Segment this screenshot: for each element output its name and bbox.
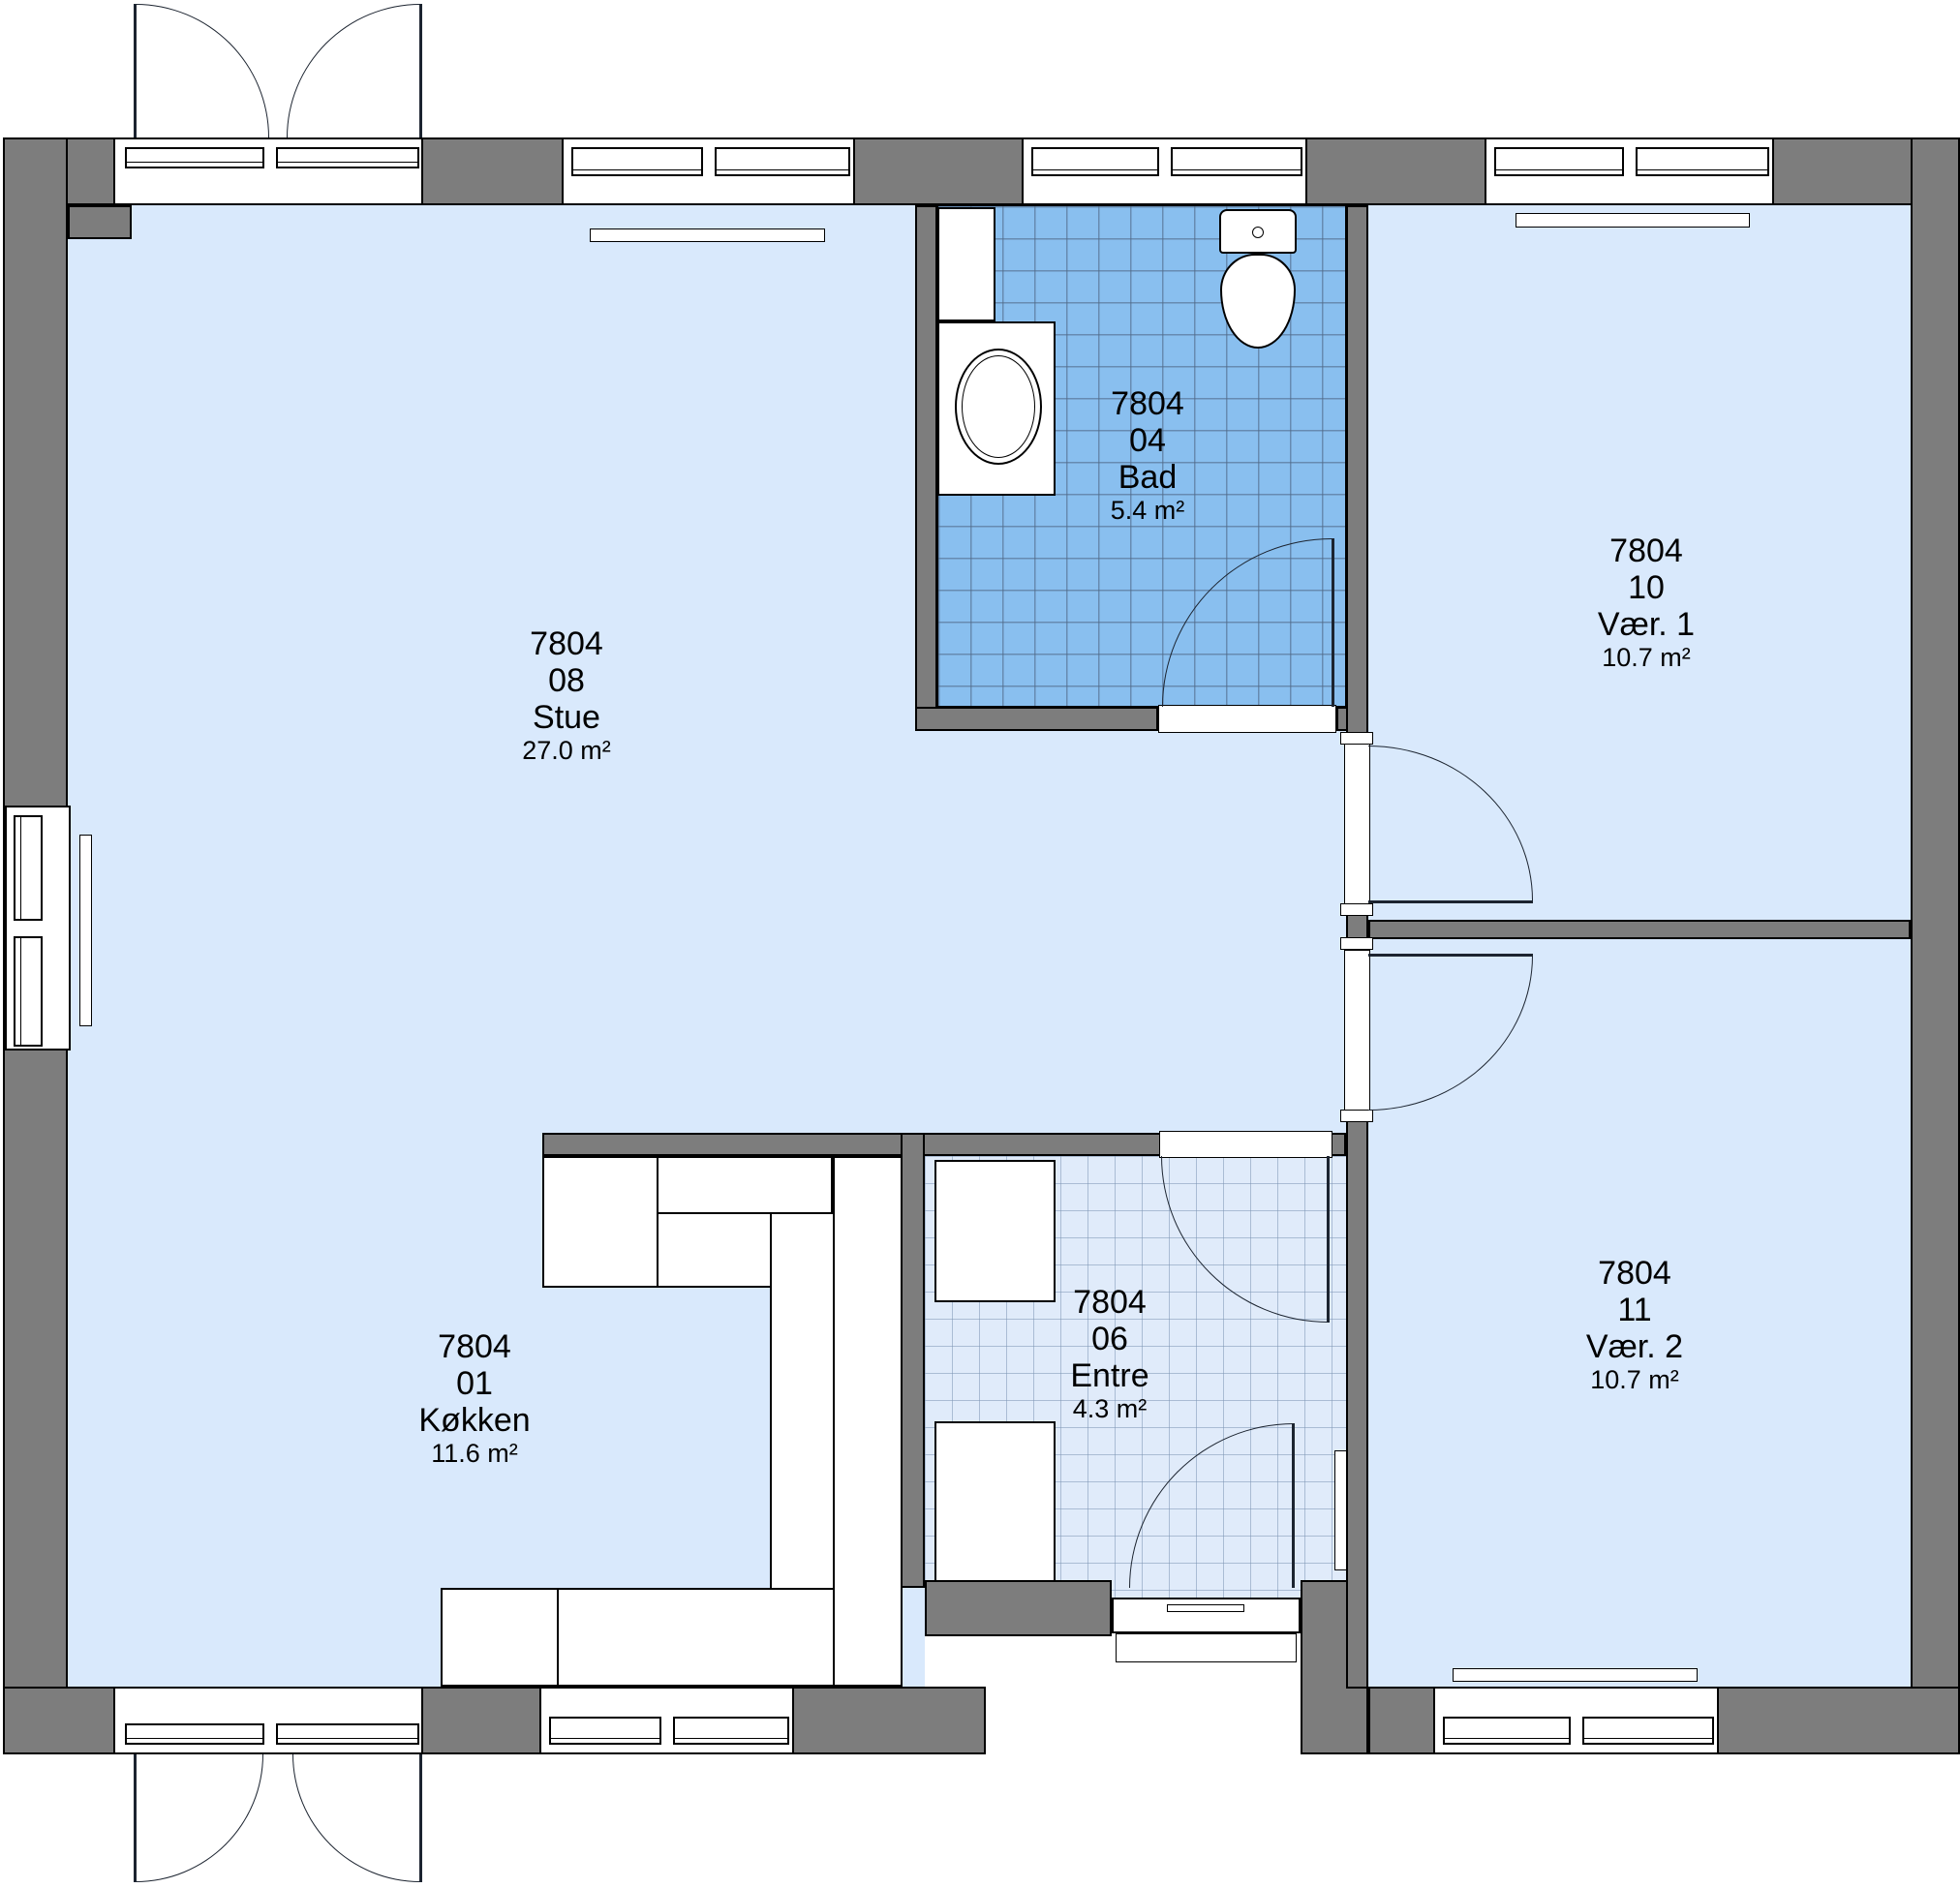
room-number: 04 xyxy=(1111,422,1185,459)
room-area: 10.7 m² xyxy=(1598,643,1695,673)
doorframe-bad xyxy=(1158,705,1336,733)
radiator-vaer2 xyxy=(1453,1668,1698,1682)
wall-hall-bedrooms-upper xyxy=(1346,205,1368,746)
room-area: 5.4 m² xyxy=(1111,496,1185,526)
kitchen-counter-mid xyxy=(657,1212,772,1288)
window-kitchen-bottom xyxy=(539,1687,794,1754)
floor-plan-canvas: 7804 08 Stue 27.0 m² 7804 01 Køkken 11.6… xyxy=(0,0,1960,1888)
kitchen-counter-top-left xyxy=(542,1156,658,1288)
window-pane xyxy=(715,147,850,176)
door-jamb xyxy=(1340,1110,1373,1122)
kitchen-counter-top-right xyxy=(657,1156,833,1214)
wall-kitchen-entre-top xyxy=(542,1133,1161,1156)
room-area: 11.6 m² xyxy=(418,1439,530,1469)
room-area: 10.7 m² xyxy=(1586,1365,1683,1395)
room-code: 7804 xyxy=(1586,1255,1683,1292)
room-name: Stue xyxy=(522,699,611,736)
kitchen-counter-divider xyxy=(557,1588,559,1687)
wall-vaer1-vaer2 xyxy=(1368,920,1911,939)
wardrobe-entre-bottom xyxy=(934,1421,1056,1588)
window-vaer2-bottom xyxy=(1433,1687,1719,1754)
room-name: Bad xyxy=(1111,459,1185,496)
room-label-entre: 7804 06 Entre 4.3 m² xyxy=(1070,1284,1148,1424)
door-jamb xyxy=(1340,937,1373,950)
door-glazing xyxy=(276,147,419,168)
wall-kitchen-entre-side xyxy=(901,1133,925,1588)
wall-bad-bottom xyxy=(915,707,1158,731)
room-label-kokken: 7804 01 Køkken 11.6 m² xyxy=(418,1328,530,1469)
room-number: 10 xyxy=(1598,569,1695,606)
room-code: 7804 xyxy=(418,1328,530,1365)
window-pane xyxy=(571,147,703,176)
door-leaf-vaer2 xyxy=(1368,954,1533,957)
door-jamb xyxy=(1340,732,1373,745)
double-door-bottom xyxy=(113,1687,423,1754)
room-label-bad: 7804 04 Bad 5.4 m² xyxy=(1111,385,1185,526)
kitchen-counter-right-col-b xyxy=(833,1156,903,1687)
window-pane xyxy=(1171,147,1302,176)
radiator-left-wall xyxy=(79,835,92,1026)
window-pane xyxy=(1443,1717,1571,1745)
doorframe-vaer2 xyxy=(1344,950,1370,1111)
room-code: 7804 xyxy=(522,625,611,662)
door-leaf-vaer1 xyxy=(1368,900,1533,903)
door-swing-arc xyxy=(287,4,420,137)
room-name: Vær. 1 xyxy=(1598,606,1695,643)
room-name: Køkken xyxy=(418,1402,530,1439)
sink-basin-inner xyxy=(962,355,1035,458)
window-pane xyxy=(14,815,43,921)
room-code: 7804 xyxy=(1070,1284,1148,1321)
room-code: 7804 xyxy=(1111,385,1185,422)
entrance-door xyxy=(1112,1598,1301,1633)
room-label-vaer2: 7804 11 Vær. 2 10.7 m² xyxy=(1586,1255,1683,1395)
door-jamb xyxy=(1340,903,1373,916)
window-pane xyxy=(1582,1717,1714,1745)
room-number: 01 xyxy=(418,1365,530,1402)
radiator-stue xyxy=(590,228,825,242)
radiator-vaer1 xyxy=(1516,213,1750,228)
room-name: Vær. 2 xyxy=(1586,1328,1683,1365)
door-leaf-entre xyxy=(1327,1156,1330,1323)
toilet-flush-button xyxy=(1252,227,1264,238)
door-swing-arc xyxy=(136,1754,263,1882)
door-glazing xyxy=(125,1723,264,1745)
window-stue-left xyxy=(5,806,71,1051)
window-pane xyxy=(14,936,43,1047)
kitchen-counter-bottom xyxy=(441,1588,835,1687)
wall-entre-top-stub xyxy=(1331,1133,1346,1156)
toilet xyxy=(1215,207,1302,352)
doorframe-entre xyxy=(1159,1131,1332,1158)
door-leaf-bad xyxy=(1332,538,1334,707)
toilet-bowl xyxy=(1220,254,1296,349)
room-label-vaer1: 7804 10 Vær. 1 10.7 m² xyxy=(1598,533,1695,673)
window-vaer1-top xyxy=(1485,137,1774,205)
vanity-cabinet xyxy=(937,207,995,321)
wall-hall-bedrooms-lower xyxy=(1346,1109,1368,1689)
room-number: 08 xyxy=(522,662,611,699)
window-stue-top xyxy=(562,137,855,205)
window-pane xyxy=(1494,147,1624,176)
wall-corner-post-top-left xyxy=(68,205,132,239)
door-leaf-entrance xyxy=(1292,1423,1295,1588)
door-glazing xyxy=(125,147,264,168)
doorframe-vaer1 xyxy=(1344,744,1370,904)
door-glazing xyxy=(276,1723,419,1745)
wardrobe-entre-top xyxy=(934,1160,1056,1302)
room-label-stue: 7804 08 Stue 27.0 m² xyxy=(522,625,611,766)
porch-step xyxy=(1116,1633,1297,1662)
outer-wall-right xyxy=(1911,137,1960,1754)
window-pane xyxy=(549,1717,661,1745)
wall-entrance-recess-left xyxy=(925,1580,1112,1636)
window-bad-top xyxy=(1022,137,1307,205)
room-number: 11 xyxy=(1586,1292,1683,1328)
window-pane xyxy=(673,1717,789,1745)
window-pane xyxy=(1636,147,1769,176)
door-swing-arc xyxy=(292,1754,420,1882)
room-area: 4.3 m² xyxy=(1070,1394,1148,1424)
window-pane xyxy=(1031,147,1159,176)
room-area: 27.0 m² xyxy=(522,736,611,766)
room-name: Entre xyxy=(1070,1357,1148,1394)
double-door-top xyxy=(113,137,423,205)
wall-stue-bad xyxy=(915,205,937,731)
entrance-door-leaf-line xyxy=(1167,1604,1244,1612)
room-number: 06 xyxy=(1070,1321,1148,1357)
door-swing-arc xyxy=(136,4,269,137)
room-code: 7804 xyxy=(1598,533,1695,569)
